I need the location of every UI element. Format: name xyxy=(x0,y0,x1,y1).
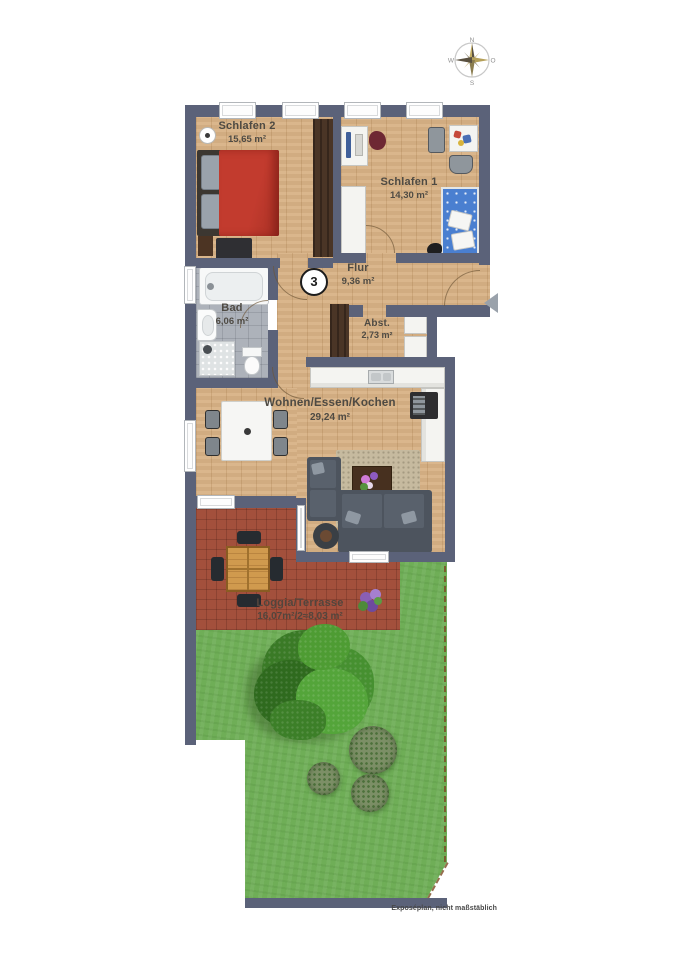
wall-flur-abst xyxy=(386,305,490,317)
compass-svg: N O S W xyxy=(446,34,498,86)
compass-label-east: O xyxy=(490,58,495,65)
dining-chair xyxy=(273,437,288,456)
room-name: Abst. xyxy=(337,318,417,329)
compass-label-south: S xyxy=(470,80,475,86)
window-living xyxy=(184,420,196,472)
shower-drain xyxy=(203,345,212,354)
bush xyxy=(307,762,340,795)
window-schlafen1 xyxy=(344,102,381,119)
bed-pillow xyxy=(201,194,221,229)
toy-box xyxy=(449,125,478,152)
pouf-center xyxy=(320,530,332,542)
window-bad xyxy=(184,266,196,304)
room-name: Bad xyxy=(192,302,272,314)
toy xyxy=(453,130,462,139)
door-loggia xyxy=(197,495,235,509)
bed-duvet-red xyxy=(219,150,279,236)
bedside-cabinet xyxy=(198,236,213,256)
room-name: Flur xyxy=(318,262,398,274)
wall-right-lower xyxy=(445,357,455,562)
wall-right-upper xyxy=(479,105,490,265)
flower-decoration xyxy=(370,472,378,480)
room-area: 9,36 m² xyxy=(318,276,398,287)
window-schlafen1 xyxy=(406,102,443,119)
loggia-chair xyxy=(211,557,224,581)
armchair xyxy=(449,155,473,174)
room-area: 6,06 m² xyxy=(192,316,272,327)
dining-chair xyxy=(205,437,220,456)
label-abst: Abst. 2,73 m² xyxy=(337,318,417,340)
compass-rose-icon: N O S W xyxy=(446,34,498,86)
sofa-cushion xyxy=(310,490,336,517)
entrance-arrow-icon xyxy=(484,293,498,313)
footer-disclaimer: Exposéplan, nicht maßstäblich xyxy=(297,905,497,912)
bush xyxy=(351,774,389,812)
dining-chair xyxy=(205,410,220,429)
sink-basin xyxy=(383,373,391,381)
bed-pillow xyxy=(201,155,221,190)
bathtub xyxy=(199,267,269,305)
table-center-dot xyxy=(244,428,251,435)
loggia-table xyxy=(226,546,270,592)
unit-number-badge: 3 xyxy=(300,268,328,296)
label-bad: Bad 6,06 m² xyxy=(192,302,272,327)
sofa-left-piece xyxy=(307,457,341,521)
wall-schlafen2-bottom xyxy=(185,258,280,268)
side-pouf xyxy=(313,523,339,549)
dresser xyxy=(428,127,445,153)
label-loggia: Loggia/Terrasse 16,07m²/2≈8,03 m² xyxy=(205,597,395,622)
label-flur: Flur 9,36 m² xyxy=(318,262,398,287)
room-area: 2,73 m² xyxy=(337,330,417,340)
loggia-chair xyxy=(237,531,261,544)
sofa-bottom-piece xyxy=(338,490,432,553)
wall-schlafen1-bottom xyxy=(396,253,490,263)
bush xyxy=(349,726,397,774)
window-living-bottom xyxy=(349,551,389,563)
door-living-side xyxy=(297,505,305,551)
room-area: 15,65 m² xyxy=(177,134,317,145)
garden-boundary-line xyxy=(444,566,446,862)
sink-basin xyxy=(371,373,381,381)
room-area: 16,07m²/2≈8,03 m² xyxy=(205,611,395,622)
tree-foliage xyxy=(270,700,326,740)
room-name: Loggia/Terrasse xyxy=(205,597,395,609)
loggia-chair xyxy=(270,557,283,581)
wall-flur-abst xyxy=(349,305,363,317)
toy xyxy=(458,140,464,146)
compass-label-north: N xyxy=(470,37,475,44)
wall-kitchen-top xyxy=(306,357,455,367)
room-name: Wohnen/Essen/Kochen xyxy=(240,397,420,409)
toilet-bowl xyxy=(244,356,260,375)
window-schlafen2 xyxy=(219,102,256,119)
label-wohnen: Wohnen/Essen/Kochen 29,24 m² xyxy=(240,397,420,423)
room-area: 14,30 m² xyxy=(339,190,479,201)
desk-keyboard xyxy=(355,134,363,156)
floorplan-canvas: Schlafen 2 15,65 m² Schlafen 1 14,30 m² … xyxy=(0,0,678,960)
kitchen-sink xyxy=(368,370,394,384)
window-schlafen2 xyxy=(282,102,319,119)
bathtub-faucet xyxy=(207,283,214,290)
desk-chair xyxy=(369,131,386,150)
desk-computer xyxy=(346,132,351,158)
compass-label-west: W xyxy=(448,58,455,65)
label-schlafen2: Schlafen 2 15,65 m² xyxy=(177,120,317,145)
wall-bad-bottom xyxy=(185,378,278,388)
compass-point-west xyxy=(455,57,472,63)
room-name: Schlafen 2 xyxy=(177,120,317,132)
room-area: 29,24 m² xyxy=(240,412,420,423)
shower xyxy=(199,341,235,376)
label-schlafen1: Schlafen 1 14,30 m² xyxy=(339,176,479,201)
room-name: Schlafen 1 xyxy=(339,176,479,188)
